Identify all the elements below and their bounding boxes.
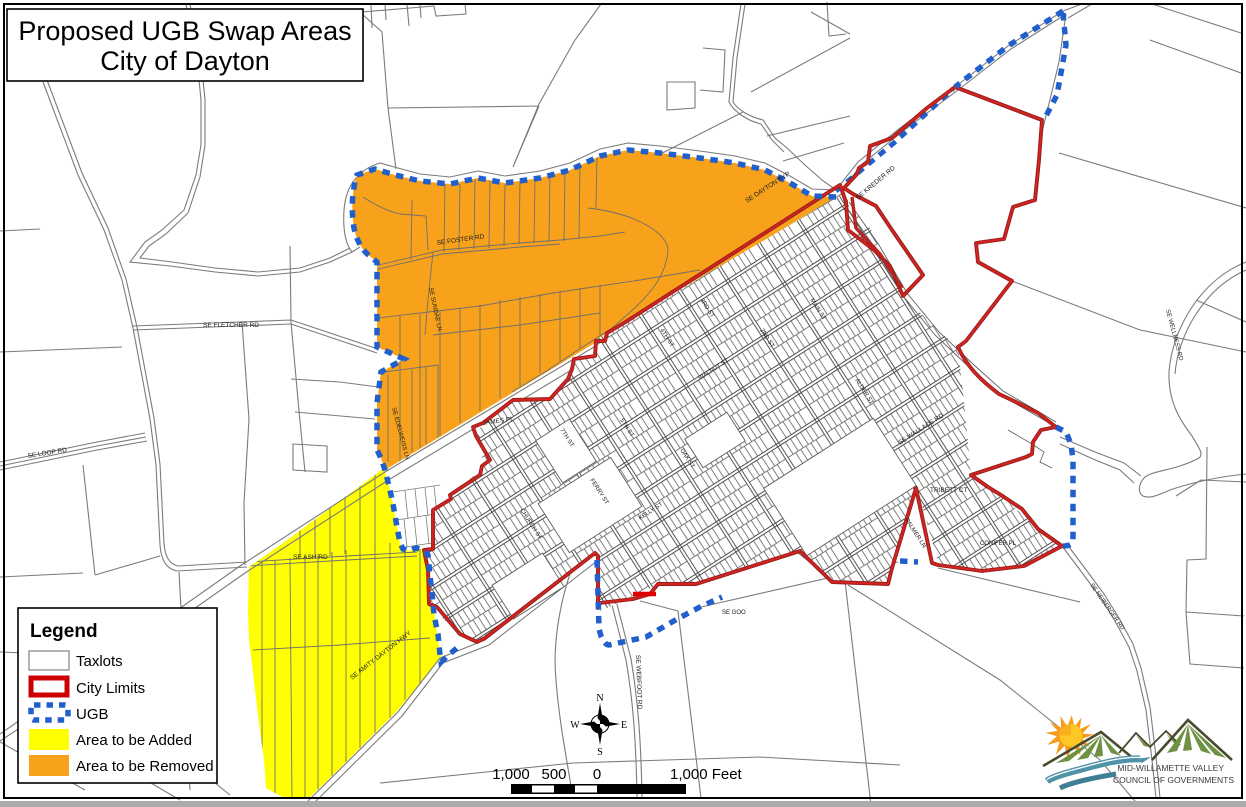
svg-text:SE FLETCHER RD: SE FLETCHER RD xyxy=(203,322,259,329)
svg-text:TRIBETT CT: TRIBETT CT xyxy=(930,487,967,494)
svg-text:W: W xyxy=(570,720,580,731)
svg-text:E: E xyxy=(621,720,627,731)
svg-text:SE ASH RD: SE ASH RD xyxy=(293,554,328,561)
svg-text:City of Dayton: City of Dayton xyxy=(100,46,270,76)
svg-text:0: 0 xyxy=(593,766,601,783)
svg-text:Area to be Removed: Area to be Removed xyxy=(76,758,214,775)
svg-text:1,000: 1,000 xyxy=(492,766,530,783)
svg-text:COUNCIL OF GOVERNMENTS: COUNCIL OF GOVERNMENTS xyxy=(1113,775,1234,785)
svg-text:CONIFER PL: CONIFER PL xyxy=(980,541,1017,547)
svg-text:1,000 Feet: 1,000 Feet xyxy=(670,766,743,783)
svg-text:Taxlots: Taxlots xyxy=(76,653,123,670)
svg-text:SE GOO: SE GOO xyxy=(722,610,746,616)
svg-text:Area to be Added: Area to be Added xyxy=(76,732,192,749)
svg-text:City Limits: City Limits xyxy=(76,680,145,697)
svg-text:Legend: Legend xyxy=(30,621,98,642)
svg-text:500: 500 xyxy=(541,766,566,783)
svg-text:N: N xyxy=(596,693,603,704)
svg-text:UGB: UGB xyxy=(76,706,109,723)
svg-text:MID-WILLAMETTE VALLEY: MID-WILLAMETTE VALLEY xyxy=(1117,763,1224,773)
svg-text:Proposed UGB Swap Areas: Proposed UGB Swap Areas xyxy=(18,16,351,46)
svg-text:S: S xyxy=(597,747,603,758)
